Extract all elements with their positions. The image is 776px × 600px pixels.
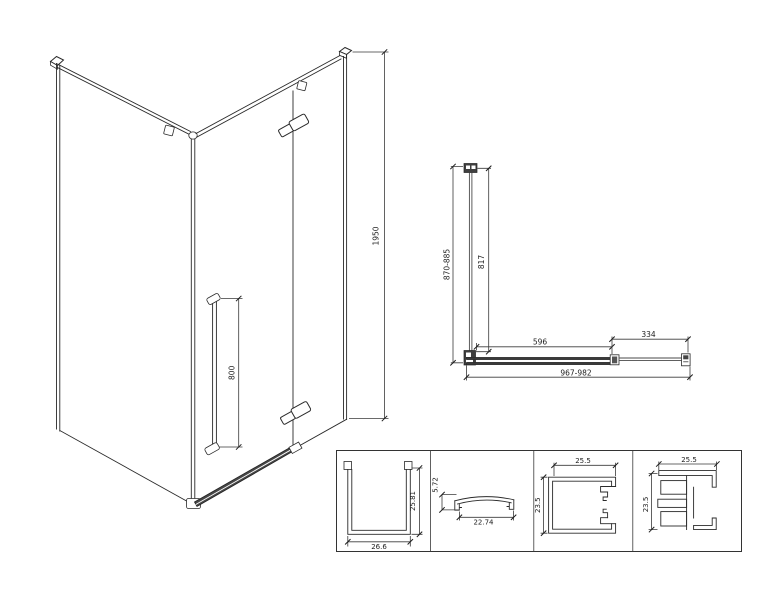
- profile-wall-channel: 25.81 26.6: [344, 462, 423, 552]
- clamp-width-label: 25.5: [575, 457, 591, 465]
- glass-clamp: [164, 125, 175, 136]
- side-glass-label: 817: [477, 255, 486, 270]
- technical-drawing-page: 1950 800: [0, 0, 776, 600]
- height-dimension-label: 1950: [371, 226, 380, 245]
- hinge-block-plan: [610, 355, 619, 365]
- door-panel: [204, 81, 311, 456]
- profile-glass-clamp: 25.5 23.5: [534, 457, 619, 536]
- plan-view: 870-885 817 596 334 967-982: [442, 164, 692, 381]
- dimension-overall-height: 1950: [349, 49, 389, 421]
- cap-height-label: 5.72: [432, 477, 440, 493]
- door-top-clamp: [297, 81, 307, 91]
- dimension-side-glass: 817: [476, 166, 491, 355]
- shower-enclosure-drawing: 1950 800: [0, 0, 776, 600]
- isometric-view: 1950 800: [51, 48, 389, 509]
- dimension-depth-range: 870-885: [442, 164, 463, 366]
- profile-sections-row: 25.81 26.6 5.72 22.74: [337, 451, 742, 552]
- fixed-panel-plan: [619, 358, 682, 361]
- cap-width-label: 22.74: [473, 519, 494, 527]
- door-hinge-lower: [279, 401, 311, 425]
- dimension-width-range: 967-982: [464, 366, 693, 381]
- side-glass-plan: [469, 173, 472, 352]
- channel-width-label: 26.6: [371, 543, 387, 551]
- dimension-handle-length: 800: [219, 296, 243, 450]
- dimension-fixed-panel: 334: [609, 330, 690, 354]
- channel-height-label: 25.81: [409, 491, 417, 511]
- door-handle: [204, 293, 221, 456]
- corner-post: [187, 132, 201, 509]
- wall-bracket-top: [464, 164, 477, 173]
- corner-knob: [189, 132, 197, 139]
- profile-wall-bracket: 25.5 23.5: [642, 456, 720, 532]
- door-plan: [467, 357, 613, 365]
- width-range-label: 967-982: [560, 368, 592, 377]
- right-glass-panel: [196, 48, 352, 449]
- left-glass-panel: [51, 57, 193, 505]
- fixed-panel-label: 334: [641, 330, 656, 339]
- wall-bracket-end: [682, 354, 691, 366]
- door-width-label: 596: [533, 338, 548, 347]
- profile-cover-cap: 5.72 22.74: [432, 477, 517, 526]
- bracket-width-label: 25.5: [681, 456, 697, 464]
- depth-range-label: 870-885: [442, 249, 451, 281]
- clamp-height-label: 23.5: [534, 497, 542, 513]
- dimension-door-width: 596: [474, 338, 615, 351]
- bracket-height-label: 23.5: [642, 497, 650, 513]
- handle-dimension-label: 800: [227, 365, 236, 380]
